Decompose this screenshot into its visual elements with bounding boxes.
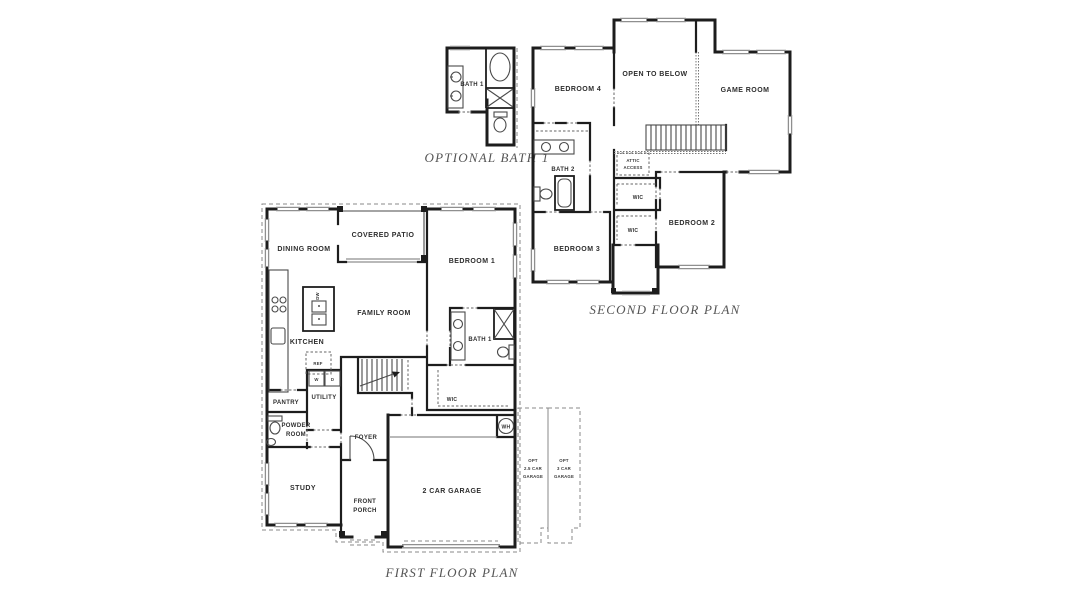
room-label-wic-lower: WIC — [628, 228, 639, 234]
opt3-label-3: GARAGE — [554, 474, 574, 479]
room-label-bath1: BATH 1 — [468, 337, 492, 343]
room-label-pantry: PANTRY — [273, 400, 299, 406]
room-label-bedroom4: BEDROOM 4 — [555, 86, 601, 93]
bath2-toilet-icon — [534, 187, 552, 201]
optional-bath-title: OPTIONAL BATH 1 — [425, 150, 550, 165]
powder-toilet-icon — [267, 416, 283, 446]
room-label-utility: UTILITY — [311, 395, 336, 401]
room-label-bedroom3: BEDROOM 3 — [554, 246, 600, 253]
room-label-porch-2: PORCH — [353, 508, 376, 514]
room-label-bath2: BATH 2 — [551, 167, 575, 173]
attic-access-label-2: ACCESS — [623, 165, 642, 170]
optional-bath-detail: BATH 1 OPTIONAL BATH 1 — [425, 46, 550, 165]
kitchen-counter-icon — [269, 270, 288, 392]
attic-access: ATTIC ACCESS — [617, 153, 649, 175]
room-label-bedroom2: BEDROOM 2 — [669, 220, 715, 227]
floor-plan-page: BATH 1 OPTIONAL BATH 1 ATTIC ACCESS — [0, 0, 1066, 600]
room-label-wic: WIC — [447, 397, 458, 403]
opt25-label-2: 2.5 CAR — [524, 466, 543, 471]
first-floor-plan: DW REF W D — [262, 204, 580, 580]
room-label-porch-1: FRONT — [354, 499, 376, 505]
room-label-study: STUDY — [290, 485, 316, 492]
bath1-vanity-icon — [451, 312, 465, 360]
bath1-toilet-icon — [498, 345, 515, 359]
shower-icon — [487, 89, 513, 107]
room-label-foyer: FOYER — [355, 435, 378, 441]
opt25-label-1: OPT — [528, 458, 538, 463]
water-heater-label: WH — [502, 425, 511, 431]
room-label-dining: DINING ROOM — [277, 246, 330, 253]
bathtub-icon — [490, 53, 510, 81]
opt25-label-3: GARAGE — [523, 474, 543, 479]
attic-access-label-1: ATTIC — [626, 158, 639, 163]
staircase-first-floor — [360, 359, 408, 391]
refrigerator-label: REF — [313, 361, 322, 366]
water-heater-icon: WH — [499, 419, 514, 434]
opt3-label-2: 3 CAR — [557, 466, 572, 471]
room-label-optional-bath: BATH 1 — [460, 82, 484, 88]
second-floor-title: SECOND FLOOR PLAN — [589, 302, 740, 317]
toilet-icon — [494, 112, 507, 132]
staircase-second-floor — [646, 125, 726, 150]
second-floor-plan: ATTIC ACCESS BEDROOM 4 OPEN TO BELOW GAM… — [531, 18, 791, 317]
room-label-garage: 2 CAR GARAGE — [422, 488, 481, 495]
room-label-game-room: GAME ROOM — [721, 87, 770, 94]
room-label-patio: COVERED PATIO — [352, 232, 415, 239]
first-floor-title: FIRST FLOOR PLAN — [384, 565, 518, 580]
dryer-label: D — [331, 377, 334, 382]
floor-plan-drawing: BATH 1 OPTIONAL BATH 1 ATTIC ACCESS — [0, 0, 1066, 600]
opt3-label-1: OPT — [559, 458, 569, 463]
kitchen-island-icon: DW — [303, 287, 334, 331]
bath1-shower-icon — [494, 309, 514, 339]
washer-dryer-icons: W D — [309, 371, 340, 386]
room-label-kitchen: KITCHEN — [290, 339, 324, 346]
bath2-tub-icon — [555, 176, 574, 210]
room-label-powder-1: POWDER — [281, 423, 310, 429]
room-label-bedroom1: BEDROOM 1 — [449, 258, 495, 265]
optional-garage-extensions: OPT 2.5 CAR GARAGE OPT 3 CAR GARAGE — [518, 408, 580, 543]
dishwasher-label: DW — [315, 291, 320, 299]
washer-label: W — [314, 377, 319, 382]
room-label-powder-2: ROOM — [286, 432, 306, 438]
room-label-open-to-below: OPEN TO BELOW — [622, 71, 687, 78]
room-label-wic-upper: WIC — [633, 195, 644, 201]
room-label-family: FAMILY ROOM — [357, 310, 411, 317]
